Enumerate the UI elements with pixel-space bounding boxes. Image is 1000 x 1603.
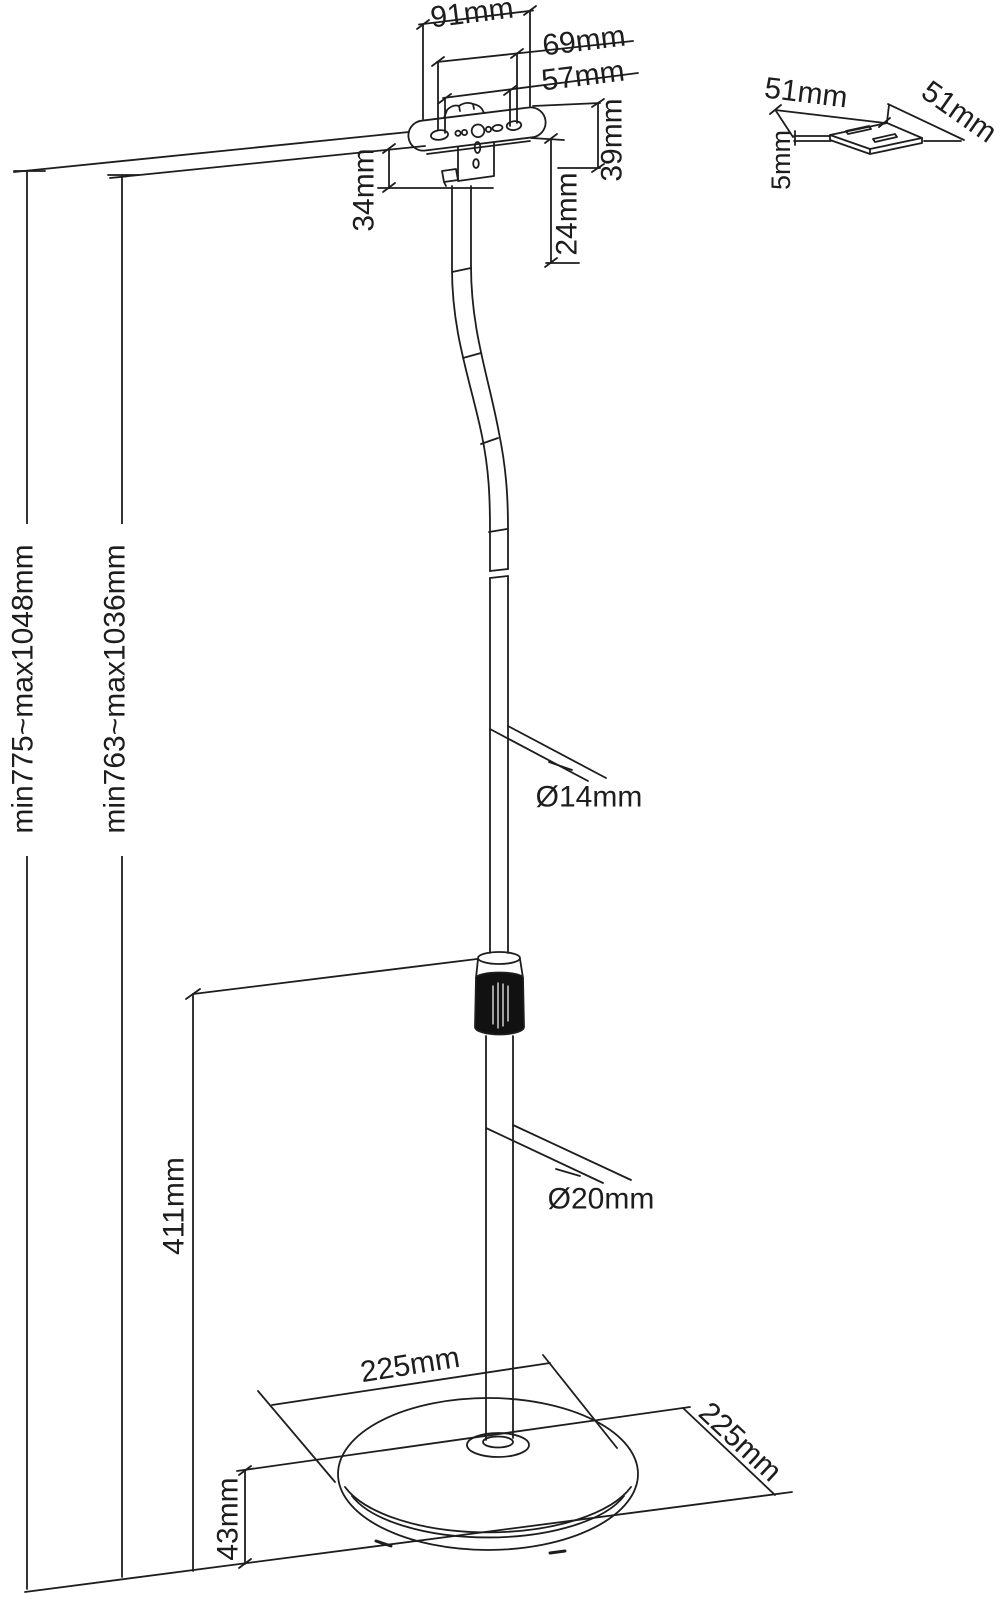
dia-label-14mm: Ø14mm: [536, 781, 643, 814]
caliper-tick: [549, 762, 572, 770]
base-hub-hole: [483, 1437, 513, 1448]
dia-20-caliper: [486, 1125, 631, 1183]
bracket-hole-center: [472, 125, 485, 138]
caliper-line: [508, 726, 606, 778]
dim-label-411mm: 411mm: [158, 1157, 191, 1255]
gooseneck-joint: [452, 268, 471, 272]
base-dimension-lines: [237, 1355, 775, 1568]
dim-225-left-ext: [258, 1391, 335, 1482]
lower-pole: [486, 1036, 513, 1440]
technical-drawing-page: { "diagram": { "top_bracket_dims": { "wi…: [0, 0, 1000, 1603]
bracket-foot: [442, 169, 458, 186]
caliper-line: [490, 729, 588, 781]
dim-label-43mm: 43mm: [212, 1477, 245, 1560]
caliper-line: [486, 1128, 603, 1183]
pole-coupler-joint: [490, 569, 508, 578]
speaker-bracket: [408, 103, 545, 186]
gooseneck-joint: [463, 353, 481, 358]
bracket-tab-hole: [473, 159, 479, 168]
dimension-labels: 91mm 69mm 57mm 39mm 34mm 24mm min775~max…: [7, 0, 1000, 1561]
bracket-hole-small: [486, 127, 491, 132]
adapter-plate-slot: [873, 134, 897, 142]
caliper-tick-line: [513, 1125, 631, 1180]
dim-225-right-ext: [543, 1355, 617, 1448]
collar-knurled-grip: [475, 973, 524, 1035]
bracket-hole-small: [455, 131, 460, 136]
collar-top-rim: [478, 952, 520, 964]
height-lock-collar: [475, 952, 524, 1035]
bracket-hole-mid-oval: [492, 124, 503, 131]
dim-39-top-tick: [533, 103, 600, 106]
adapter-plate-slot: [846, 126, 871, 134]
dim-411-leader: [193, 959, 477, 994]
dim-label-225mm-width: 225mm: [358, 1341, 462, 1389]
dim-label-34mm: 34mm: [348, 148, 381, 231]
dim-label-24mm: 24mm: [551, 172, 584, 255]
dimension-drawing: 91mm 69mm 57mm 39mm 34mm 24mm min775~max…: [0, 0, 1000, 1603]
dim-label-39mm: 39mm: [596, 98, 629, 181]
dim-label-225mm-depth: 225mm: [692, 1396, 788, 1488]
gooseneck-pole: [452, 186, 508, 953]
bracket-plate: [408, 107, 545, 150]
range-label-inner: min763~max1036mm: [99, 544, 132, 833]
dim-24-top-tick: [531, 138, 564, 140]
dim-label-91mm: 91mm: [429, 0, 516, 34]
floor-line: [25, 1492, 792, 1592]
bracket-hole-small: [462, 130, 467, 135]
plate-label-51mm-width: 51mm: [763, 72, 850, 115]
drawing-linework: [14, 6, 964, 1592]
plate-label-5mm: 5mm: [766, 130, 796, 190]
dia-label-20mm: Ø20mm: [548, 1183, 655, 1216]
range-label-outer: min775~max1048mm: [7, 544, 40, 833]
plate-label-51mm-depth: 51mm: [915, 75, 1000, 150]
gooseneck-joint: [489, 529, 507, 532]
base-rim-upper: [345, 1487, 631, 1532]
dim-5-caliper: [794, 136, 831, 141]
bracket-hole-right-oval: [506, 120, 522, 131]
bracket-hole-left-oval: [430, 129, 448, 141]
